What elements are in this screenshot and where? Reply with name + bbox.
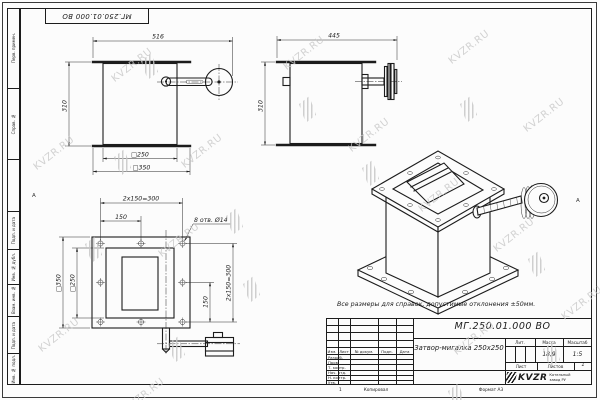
dim-plan-bolt-spacing-h: 2x150=300 <box>123 196 159 203</box>
mass-value: 18,9 <box>535 351 563 358</box>
dim-plan-holes-note: 8 отв. Ø14 <box>194 216 228 224</box>
dim-front-width: 516 <box>152 34 164 41</box>
sheets-value: 1 <box>574 363 592 368</box>
zone-letter-right: А <box>576 198 580 204</box>
titleblock-doc-number: МГ.250.01.000 ВО <box>413 321 592 332</box>
mass-label: Масса <box>535 340 563 345</box>
view-side: 445 310 <box>258 33 403 146</box>
row-utv: Утв. <box>328 380 336 385</box>
kvzr-logo-icon <box>505 372 517 383</box>
header-izm: Изм. <box>326 349 338 354</box>
scale-value: 1:5 <box>563 351 592 358</box>
drawing-sheet: Перв. примен. Справ. № Подп. и дата Инв.… <box>0 0 600 400</box>
company-cell: KVZR Котельный завод РУ <box>506 371 591 384</box>
dim-plan-bolt-half-h: 150 <box>115 214 127 221</box>
header-data: Дата <box>396 349 413 354</box>
lit-label: Лит. <box>505 340 535 345</box>
sheet-label: Лист <box>505 364 537 369</box>
format-label: Формат А3 <box>461 388 521 393</box>
dim-side-width: 445 <box>328 33 340 40</box>
scale-label: Масштаб <box>563 340 592 345</box>
view-isometric <box>358 151 558 314</box>
header-docum: № докум. <box>350 349 378 354</box>
bottom-zone-number: 1 <box>339 388 342 393</box>
company-logo-text: KVZR <box>518 373 547 383</box>
reference-note: Все размеры для справок, допустимые откл… <box>337 301 535 308</box>
dim-plan-outer-square: □350 <box>56 274 63 292</box>
view-plan: 2x150=300 150 8 отв. Ø14 □250 □350 2x150… <box>56 196 241 357</box>
copied-label: Копировал <box>346 388 406 393</box>
dim-plan-inner-square: □250 <box>70 274 77 292</box>
zone-letter-left: А <box>32 193 36 199</box>
handle-top-view <box>157 328 240 356</box>
dim-front-outer-square: □350 <box>133 165 151 172</box>
dim-plan-bolt-spacing-v: 2x150=300 <box>226 265 233 301</box>
header-podp: Подп. <box>378 349 396 354</box>
dim-front-inner-square: □250 <box>131 152 149 159</box>
dim-side-height: 310 <box>258 100 265 112</box>
titleblock-product-name: Затвор-мигалка 250x250 <box>414 344 504 352</box>
sheets-label: Листов <box>537 364 574 369</box>
dim-front-height: 310 <box>62 100 69 112</box>
company-name: Котельный завод РУ <box>549 373 577 381</box>
header-list: Лист <box>338 349 350 354</box>
row-t-kontr: Т. контр. <box>328 365 346 370</box>
bolt-holes <box>96 239 187 327</box>
view-front: 516 310 □250 □350 <box>62 34 239 176</box>
dim-plan-bolt-half-v: 150 <box>203 296 210 308</box>
